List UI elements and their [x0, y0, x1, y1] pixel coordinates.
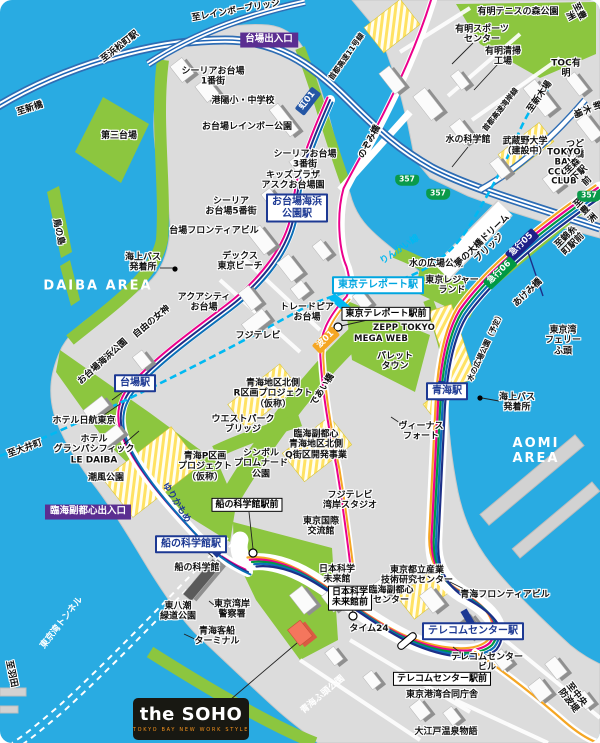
label-tokyo-bay-tunnel: 東京湾トンネル [39, 595, 86, 651]
label-yurikamome-line: ゆりかもめ [160, 481, 193, 525]
label-mizunohiroba-park-planned: 水の広場公園（予定） [466, 311, 506, 383]
label-mega-web: MEGA WEB [354, 335, 408, 345]
label-ceria-odaiba-1: シーリアお台場 1番街 [181, 67, 244, 88]
label-to-hamamatsucho-sta: 至浜松町駅 [99, 29, 141, 65]
label-seabus-terminal-east: 海上バス 発着所 [499, 393, 535, 414]
label-aomi-area: AOMI AREA [504, 437, 568, 467]
label-zepp-tokyo: ZEPP TOKYO [373, 324, 435, 334]
label-to-morishita-ekimae: 至森下駅前 [562, 156, 598, 192]
label-fuji-tv: フジテレビ [235, 331, 280, 341]
label-aomi-frontier-bldg: 青海フロンティアビル [460, 590, 549, 600]
label-higashiyashio-ryokudo-park: 東八潮 緑道公園 [160, 602, 196, 623]
label-tokyo-teleport-ekimae: 東京テレポート駅前 [341, 307, 430, 321]
soho-logo-title: the SOHO [140, 706, 243, 724]
label-odaiba-kaihin-park: お台場海浜公園 [76, 337, 130, 387]
label-to-shinkiba-road: 至新木場 [570, 96, 600, 120]
label-seabus-terminal-west: 海上バス 発着所 [125, 253, 161, 274]
label-ceria-odaiba-3: シーリアお台場 3番街 [273, 150, 336, 171]
label-akemi-bridge: あけみ橋 [511, 277, 544, 309]
label-tokyo-intl-exchange: 東京国際 交流館 [303, 517, 339, 538]
label-time-24: タイム24 [349, 624, 388, 634]
label-route-357-c: 357 [577, 191, 600, 202]
label-tokyo-port-godochosha: 東京港湾合同庁舎 [406, 690, 478, 700]
label-sangyo-gijutsu-center: 東京都立産業 技術研究センター [381, 566, 453, 587]
label-tokyo-teleport-sta: 東京テレポート駅 [332, 276, 424, 294]
label-ariake-sports-center: 有明スポーツ センター [455, 25, 509, 46]
label-toc-ariake: TOC有明 [549, 59, 583, 80]
label-miraikan-mae: 日本科学 未来館前 [328, 586, 372, 611]
label-to-chuo-bohatei: 至中央防波堤 [555, 681, 589, 716]
label-aomi-sta: 青海駅 [426, 382, 468, 400]
label-west-park-bridge: ウエストパーク ブリッジ [211, 415, 274, 436]
soho-logo-subtitle: TOKYO BAY NEW WORK STYLE [133, 727, 249, 733]
label-to-kinshicho-ekimae: 至錦糸町駅前 [552, 223, 588, 259]
label-koyo-school: 港陽小・中学校 [211, 96, 274, 106]
label-to-toyosu-top: 至豊洲 [559, 0, 589, 30]
label-telecom-center-ekimae: テレコムセンター駅前 [393, 672, 491, 686]
label-ariake-tennis-park: 有明テニスの森公園 [477, 7, 558, 17]
label-aomi-north-q-project: 臨海副都心 青海地区北側 Q街区開発事業 [285, 429, 347, 460]
label-shiokaze-park: 潮風公園 [88, 473, 124, 483]
label-shuto-expwy-wangan: 首都高速湾岸線 [481, 87, 520, 134]
label-shuto-expwy-11: 首都高速11号線 [328, 32, 367, 82]
label-aomi-futo-park: 青海ふ頭公園 [299, 674, 347, 717]
label-venus-fort: ヴィーナス フォート [398, 422, 443, 443]
label-route-357-b: 357 [426, 189, 450, 200]
label-to-haneda: 至羽田 [3, 660, 19, 689]
map-labels: 至レインボーブリッジ至浜松町駅至新橋台場出入口シーリアお台場 1番街港陽小・中学… [0, 0, 600, 743]
label-hotel-nikko-tokyo: ホテル日航東京 [52, 416, 115, 426]
label-trade-pia-odaiba: トレードピア お台場 [280, 303, 334, 324]
label-tokyo-leisure-land: 東京レジャー ランド [425, 276, 479, 297]
label-rinkai-line: りんかい線 [378, 233, 421, 267]
label-kyuko-06-badge: 急行06 [483, 256, 518, 290]
label-daiba-area: DAIBA AREA [43, 280, 152, 295]
label-miraikan: 日本科学 未来館 [319, 565, 355, 586]
label-nozomi-bridge: のぞみ橋 [357, 124, 383, 161]
label-tokyo-bay-police: 東京湾岸 警察署 [214, 600, 250, 621]
label-symbol-promenade-park: シンボル プロムナード 公園 [234, 448, 288, 479]
label-nami-01-badge: 波01 [312, 326, 341, 354]
label-aomi-north-r-project: 青海地区北側 R区画プロジェクト （仮称） [234, 378, 313, 409]
label-ceria-odaiba-5: シーリア お台場5番街 [205, 197, 256, 218]
label-tori-no-shima: 鳥の島 [50, 218, 66, 247]
label-odaiba-rainbow-park: お台場レインボー公園 [202, 122, 292, 132]
label-yume-no-ohashi-dream-bridge: 夢の大橋ドリーム ブリッジ [453, 213, 519, 278]
label-kyuko-05-badge: 急行05 [505, 228, 540, 262]
label-funenokagakukan-ekimae: 船の科学館駅前 [211, 498, 282, 512]
label-palette-town: パレット タウン [377, 352, 413, 373]
label-mizu-no-kagakukan: 水の科学館 [445, 135, 490, 145]
label-to-rainbow-bridge: 至レインボーブリッジ [191, 0, 281, 24]
label-dai-san-daiba: 第三台場 [101, 131, 137, 141]
label-rinkai-fukutoshin-center: 臨海副都心 センター [368, 586, 413, 607]
label-aomi-p-project: 青海P区画 プロジェクト （仮称） [178, 451, 232, 482]
label-to-shimbashi: 至新橋 [16, 100, 45, 118]
label-rinkai-fukutoshin-exit: 臨海副都心出入口 [45, 505, 131, 520]
label-daiba-sta: 台場駅 [114, 374, 156, 392]
label-telecom-center-sta: テレコムセンター駅 [422, 622, 524, 640]
label-telecom-center-bldg: テレコムセンター ビル [451, 653, 523, 674]
label-decks-tokyo-beach: デックス 東京ビーチ [217, 252, 262, 273]
odaiba-aomi-access-map: 至レインボーブリッジ至浜松町駅至新橋台場出入口シーリアお台場 1番街港陽小・中学… [0, 0, 600, 743]
label-daiba-exit: 台場出入口 [240, 33, 298, 48]
label-musashino-univ: 武蔵野大学 （建設中） [502, 137, 547, 158]
label-deai-bridge: であい橋 [309, 372, 337, 408]
label-aqua-city-odaiba: アクアシティ お台場 [178, 293, 231, 314]
label-aomi-passenger-terminal: 青海客船 ターミナル [194, 627, 239, 648]
label-tokyo-bay-ferry-pier: 東京湾 フェリーふ頭 [545, 325, 582, 356]
label-funenokagakukan: 船の科学館 [174, 563, 219, 573]
soho-logo: the SOHO TOKYO BAY NEW WORK STYLE [133, 698, 249, 740]
label-to-toyosu-right: 至豊洲 [570, 195, 600, 227]
label-odaiba-kaihinkoen-sta: お台場海浜 公園駅 [266, 194, 328, 223]
label-daiba-frontier-bldg: 台場フロンティアビル [169, 226, 258, 236]
label-funenokagakukan-sta: 船の科学館駅 [155, 535, 227, 553]
label-kids-plaza-ask-odaiba: キッズプラザ アスクお台場園 [261, 171, 324, 192]
label-tsudoi-bridge: つどい橋 [563, 140, 588, 161]
label-to-shinkiba-rail: 至新木場 [525, 79, 554, 114]
label-ooedo-onsen-monogatari: 大江戸温泉物語 [414, 727, 477, 737]
label-tokyo-bay-court-club: TOKYO BAY CCURT CLUB [546, 148, 582, 187]
label-route-357-a: 357 [395, 175, 419, 186]
label-statue-of-liberty: 自由の女神 [131, 304, 172, 341]
label-ariake-incineration-plant: 有明清掃 工場 [485, 47, 521, 68]
label-fujitv-bay-studio: フジテレビ 湾岸スタジオ [323, 491, 377, 512]
label-hotel-grand-pacific-le-daiba: ホテル グランパシフィック LE DAIBA [54, 434, 135, 465]
label-mizunohiroba-park: 水の広場公園 [409, 259, 463, 269]
label-niji-01-badge: 虹01 [295, 86, 322, 116]
label-to-oimachi: 至大井町 [6, 438, 43, 460]
